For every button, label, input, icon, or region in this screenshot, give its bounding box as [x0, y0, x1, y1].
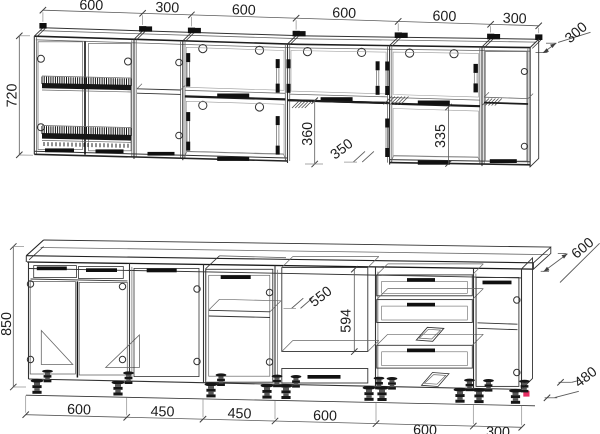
svg-text:600: 600	[232, 2, 256, 19]
svg-text:594: 594	[339, 309, 355, 333]
svg-text:300: 300	[562, 19, 591, 47]
svg-text:300: 300	[486, 424, 510, 434]
svg-text:600: 600	[79, 0, 103, 14]
svg-text:350: 350	[328, 136, 357, 163]
svg-text:720: 720	[4, 84, 20, 108]
svg-text:600: 600	[569, 235, 598, 263]
svg-text:600: 600	[67, 402, 91, 419]
svg-text:600: 600	[313, 408, 337, 425]
svg-text:335: 335	[433, 124, 449, 148]
svg-text:600: 600	[332, 5, 356, 22]
svg-text:450: 450	[150, 404, 174, 421]
svg-text:480: 480	[572, 364, 600, 391]
svg-text:300: 300	[503, 11, 527, 28]
svg-text:300: 300	[155, 0, 179, 16]
svg-text:360: 360	[300, 122, 316, 146]
svg-text:600: 600	[432, 8, 456, 25]
svg-text:600: 600	[413, 422, 437, 434]
svg-text:850: 850	[0, 312, 15, 336]
svg-text:450: 450	[227, 406, 251, 423]
svg-text:550: 550	[307, 283, 336, 310]
